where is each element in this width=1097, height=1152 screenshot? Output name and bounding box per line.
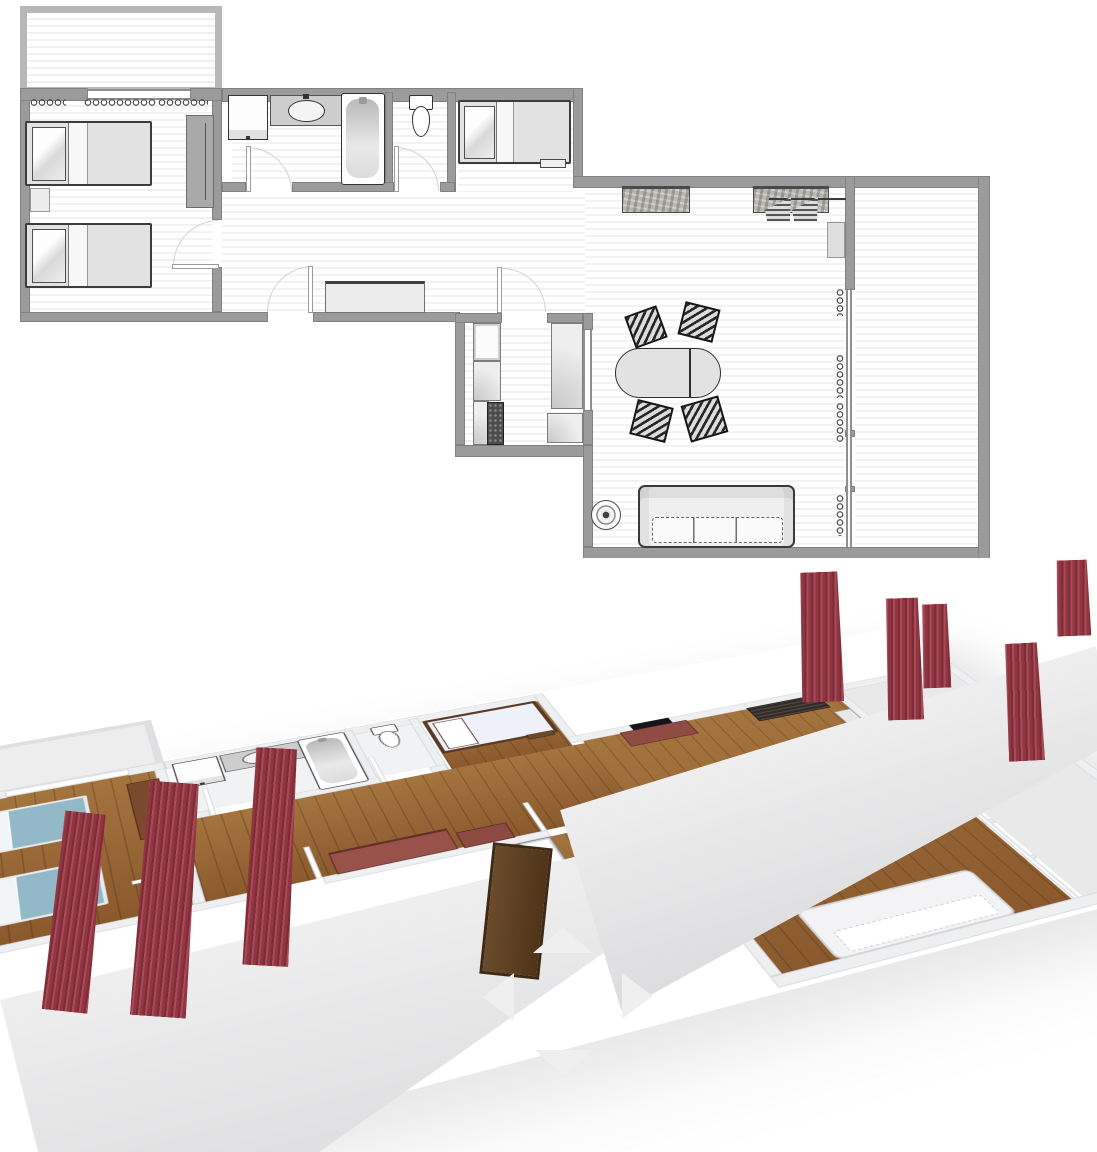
curtain-symbol-1 xyxy=(30,98,66,107)
curtain-3d-living-d xyxy=(1003,642,1045,762)
curtain-symbol-3 xyxy=(158,98,208,107)
wall-kitchen-north-b xyxy=(547,313,583,323)
render-3d-view xyxy=(0,558,1097,1152)
glass-wall-living-terrace xyxy=(846,290,852,547)
twin-bed-1[interactable] xyxy=(25,121,152,186)
wall-kitchen-east-a xyxy=(583,313,593,330)
potted-plant[interactable] xyxy=(591,500,621,530)
kitchen-counter-right-2[interactable] xyxy=(547,413,583,443)
wall-living-west xyxy=(583,445,593,547)
entry-door-leaf[interactable] xyxy=(308,266,313,313)
render-3d-overlay xyxy=(0,558,1097,1152)
wall-bedroom2-east xyxy=(573,88,583,180)
wall-south-mid xyxy=(313,312,460,322)
curtain-symbol-2 xyxy=(84,98,156,107)
curtain-3d-living-a xyxy=(798,571,845,702)
wall-bath-south-c xyxy=(440,182,455,192)
wall-kitchen-north-a xyxy=(455,313,502,323)
balcony xyxy=(20,6,222,94)
pan-down-button[interactable] xyxy=(535,1050,593,1076)
bathroom-cabinet[interactable] xyxy=(228,95,268,140)
wall-terrace-east xyxy=(978,176,990,560)
single-bed-bedroom2[interactable] xyxy=(458,100,571,164)
bathroom-sink[interactable] xyxy=(270,95,342,126)
toilet[interactable] xyxy=(407,95,433,137)
window-kitchen-east xyxy=(583,330,592,410)
kitchen-fridge[interactable] xyxy=(473,323,501,361)
pan-up-button[interactable] xyxy=(533,927,593,953)
kitchen-stove[interactable] xyxy=(487,402,504,445)
bathtub[interactable] xyxy=(341,93,385,185)
kitchen-counter-right[interactable] xyxy=(551,323,583,409)
wall-kitchen-east-b xyxy=(583,410,593,445)
curtain-3d-living-b xyxy=(884,597,924,720)
kitchen-door-leaf[interactable] xyxy=(497,267,502,313)
floor-plan-2d-view xyxy=(0,0,1097,560)
wall-kitchen-south xyxy=(455,445,593,457)
pan-right-button[interactable] xyxy=(622,973,653,1019)
bedroom1-door-leaf[interactable] xyxy=(172,264,219,269)
living-closet[interactable] xyxy=(827,222,845,258)
wardrobe[interactable] xyxy=(186,115,214,208)
wall-bath-south-a xyxy=(222,182,246,192)
wall-kitchen-west xyxy=(455,313,465,445)
living-sideboard[interactable] xyxy=(622,186,690,213)
curtain-symbol-glass-1 xyxy=(836,288,845,316)
pan-left-button[interactable] xyxy=(483,973,514,1021)
dining-table[interactable] xyxy=(615,348,721,398)
curtain-3d-corner xyxy=(1055,559,1092,636)
bedroom2-stool[interactable] xyxy=(540,159,566,168)
kitchen-counter-left-1[interactable] xyxy=(473,361,501,401)
curtain-symbol-glass-3 xyxy=(836,402,845,442)
curtain-3d-living-c xyxy=(921,604,952,689)
hallway-bench[interactable] xyxy=(325,281,425,313)
nightstand[interactable] xyxy=(30,188,50,212)
sofa[interactable] xyxy=(638,485,795,548)
wall-south-west xyxy=(20,312,268,322)
floor-plan-app-canvas xyxy=(0,0,1097,1152)
wc-door-leaf[interactable] xyxy=(394,146,399,192)
curtain-symbol-glass-2 xyxy=(836,354,845,398)
bathroom-door-leaf[interactable] xyxy=(246,146,251,192)
wall-bedroom1-east-b xyxy=(212,267,222,312)
wall-living-terrace-stub xyxy=(845,176,855,290)
twin-bed-2[interactable] xyxy=(25,223,152,288)
wall-wc-east xyxy=(447,92,456,192)
room-terrace xyxy=(855,188,978,547)
curtain-symbol-glass-4 xyxy=(836,494,845,536)
wall-bath-wc-divider xyxy=(385,92,393,192)
